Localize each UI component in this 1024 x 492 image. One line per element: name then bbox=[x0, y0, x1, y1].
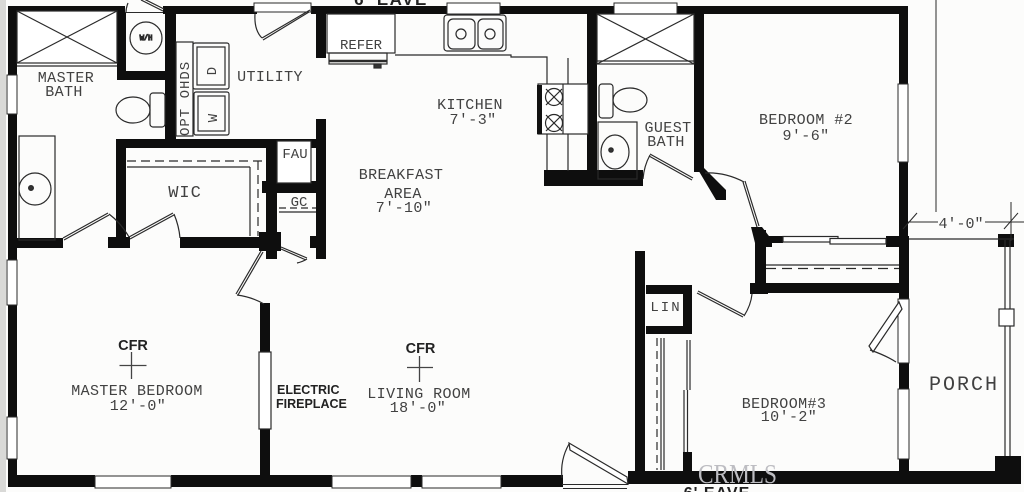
svg-text:CRMLS: CRMLS bbox=[698, 459, 777, 489]
svg-text:W/H: W/H bbox=[140, 35, 153, 43]
svg-text:7'-10": 7'-10" bbox=[376, 200, 432, 217]
svg-text:BREAKFAST: BREAKFAST bbox=[359, 167, 444, 184]
svg-text:CFR: CFR bbox=[118, 338, 148, 354]
svg-text:18'-0": 18'-0" bbox=[390, 400, 446, 417]
svg-text:BATH: BATH bbox=[647, 134, 685, 151]
svg-text:4'-0": 4'-0" bbox=[938, 216, 983, 233]
svg-text:WIC: WIC bbox=[168, 184, 202, 203]
svg-text:PORCH: PORCH bbox=[929, 374, 999, 397]
svg-text:CFR: CFR bbox=[406, 341, 436, 357]
svg-text:12'-0": 12'-0" bbox=[110, 398, 166, 415]
svg-text:10'-2": 10'-2" bbox=[761, 409, 817, 426]
svg-text:D: D bbox=[205, 67, 221, 75]
svg-text:ELECTRIC: ELECTRIC bbox=[277, 383, 340, 397]
svg-text:BEDROOM #2: BEDROOM #2 bbox=[759, 112, 853, 129]
svg-text:7'-3": 7'-3" bbox=[449, 112, 496, 129]
svg-text:9'-6": 9'-6" bbox=[782, 128, 829, 145]
svg-text:BATH: BATH bbox=[45, 84, 83, 101]
svg-text:6' EAVE: 6' EAVE bbox=[354, 0, 428, 9]
svg-text:REFER: REFER bbox=[340, 38, 383, 54]
svg-text:OPT OHDS: OPT OHDS bbox=[178, 61, 194, 136]
svg-text:UTILITY: UTILITY bbox=[237, 69, 303, 86]
svg-text:FIREPLACE: FIREPLACE bbox=[276, 397, 347, 411]
svg-text:LIN: LIN bbox=[650, 300, 681, 316]
svg-text:FAU: FAU bbox=[282, 147, 307, 163]
svg-text:GC: GC bbox=[291, 195, 308, 211]
svg-text:W: W bbox=[206, 113, 222, 122]
